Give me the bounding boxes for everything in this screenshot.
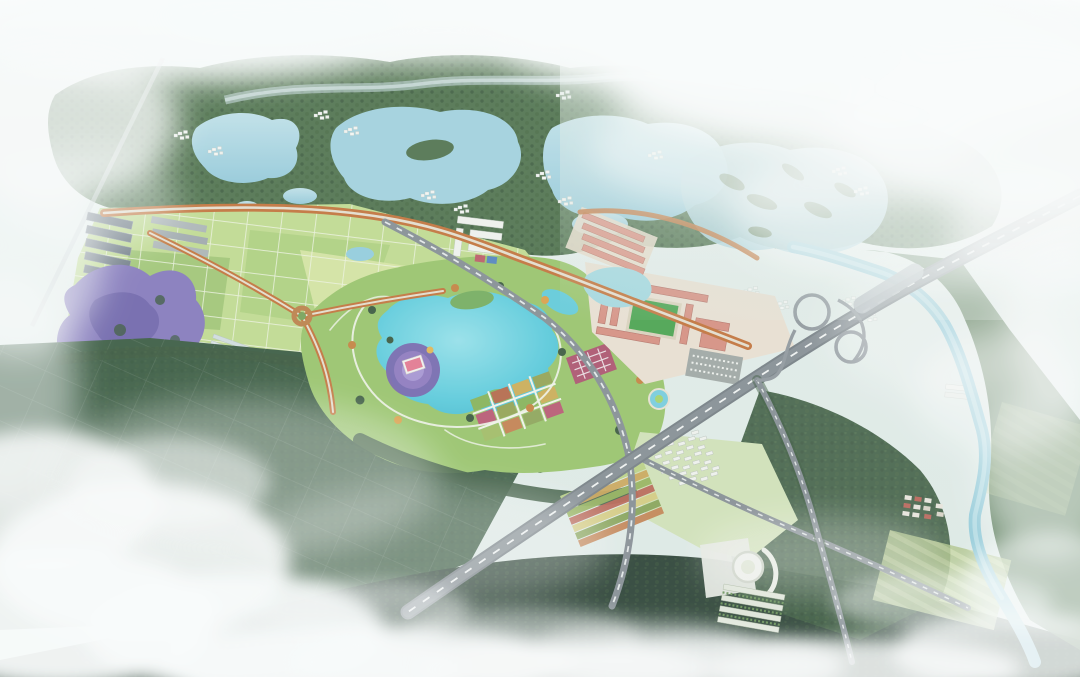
mist-and-clouds xyxy=(0,0,1080,677)
masterplan-rendering xyxy=(0,0,1080,677)
aerial-rendering-canvas xyxy=(0,0,1080,677)
global-haze-veil xyxy=(0,0,1080,677)
